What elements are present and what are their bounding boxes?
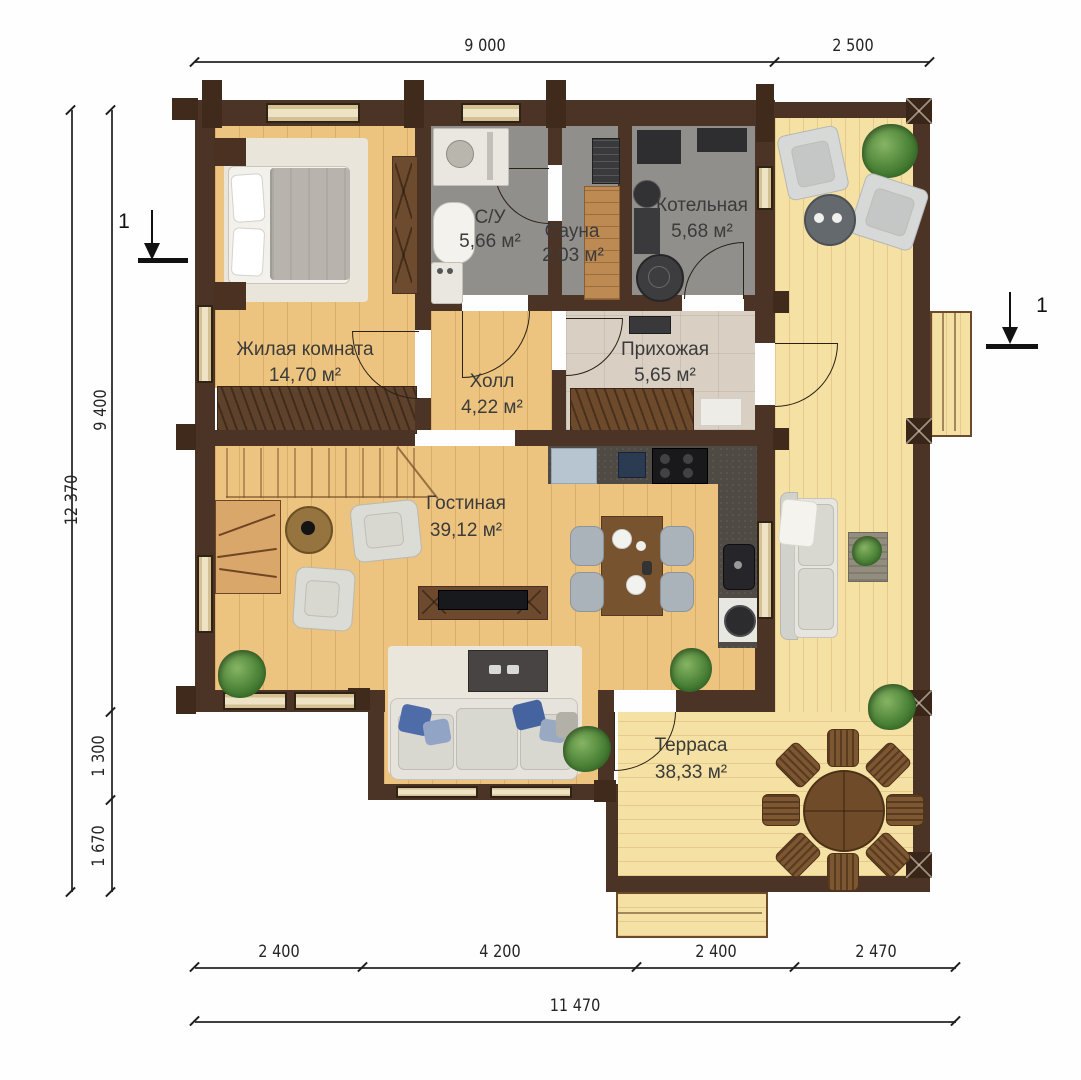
appliance-pad (719, 598, 757, 642)
boiler (636, 254, 684, 302)
wardrobe-panel (395, 163, 412, 219)
step-line (954, 313, 956, 431)
room-area-hall: 4,22 м² (440, 398, 544, 419)
mirror (487, 132, 493, 180)
section-marker-line (1009, 292, 1011, 328)
log-end (172, 98, 198, 120)
kitchen-sink (723, 544, 755, 590)
coffee-table (468, 650, 548, 692)
armchair-cushion (790, 139, 836, 188)
burner (660, 468, 670, 478)
section-marker-bar (986, 344, 1038, 349)
log-end (176, 686, 196, 714)
doormat (700, 398, 742, 426)
log-end (773, 291, 789, 313)
nightstand (214, 138, 246, 166)
dim-top-2500: 2 500 (806, 36, 900, 56)
dining-chair (570, 526, 604, 566)
fridge (551, 448, 597, 484)
wicker-chair (827, 853, 859, 891)
dim-left-12370: 12 370 (62, 453, 82, 547)
dim-top-9000: 9 000 (438, 36, 532, 56)
terrace-post (906, 98, 932, 124)
room-label-boiler: Котельная (638, 196, 766, 217)
dim-bottom-4200: 4 200 (453, 942, 547, 962)
section-marker-bar (138, 258, 188, 263)
log-end (546, 80, 566, 128)
window (294, 692, 356, 710)
log-end (594, 780, 616, 802)
step-line (618, 912, 762, 914)
wall-wet-bottom-c (744, 295, 775, 311)
dining-chair (570, 572, 604, 612)
room-area-terrace: 38,33 м² (626, 763, 756, 784)
log-end (773, 428, 789, 450)
dim-line-bottom-segments (195, 967, 956, 969)
sauna-stove (592, 138, 620, 184)
wicker-chair (886, 794, 924, 826)
room-area-bedroom: 14,70 м² (225, 366, 385, 387)
knob (447, 268, 453, 274)
window (757, 521, 773, 619)
terrace-dining-table (803, 770, 885, 852)
dining-chair (660, 572, 694, 612)
side-table (285, 506, 333, 554)
dining-chair (660, 526, 694, 566)
dim-line-bottom-total (195, 1021, 956, 1023)
plate (612, 529, 632, 549)
dim-left-1670: 1 670 (89, 799, 109, 893)
room-label-sauna: Сауна (526, 222, 618, 243)
bedroom-closet (217, 386, 417, 434)
window (197, 305, 213, 383)
window (490, 786, 572, 798)
bed-pillow (231, 227, 265, 277)
plate (626, 575, 646, 595)
room-label-livingroom: Гостиная (398, 494, 534, 515)
wall-hall-hallway (552, 370, 566, 446)
boiler-ring (648, 266, 670, 288)
nightstand (214, 282, 246, 310)
room-area-livingroom: 39,12 м² (400, 521, 532, 542)
table-grain-line (843, 772, 845, 850)
bottle (642, 561, 652, 575)
log-end (756, 84, 774, 142)
window (396, 786, 478, 798)
throw-blanket (778, 498, 819, 548)
cup (636, 541, 646, 551)
armchair-cushion (304, 580, 340, 618)
armchair-cushion (864, 187, 916, 238)
hob-icon (724, 605, 756, 637)
armchair-cushion (363, 511, 404, 549)
dim-left-9400: 9 400 (91, 363, 111, 457)
room-label-hallway: Прихожая (598, 340, 732, 361)
cup (832, 213, 842, 223)
wall-terrace-bottom (606, 876, 930, 892)
wall-bedroom-right-b (415, 398, 431, 430)
dim-bottom-11470: 11 470 (528, 996, 622, 1016)
step-line (942, 313, 944, 431)
burner (683, 454, 693, 464)
washing-machine (431, 262, 463, 304)
bed-pillow (230, 173, 265, 223)
terrace-post (906, 418, 932, 444)
room-label-bathroom: С/У (448, 208, 532, 229)
log-end (202, 80, 222, 128)
window (266, 103, 360, 123)
section-marker-label: 1 (1030, 294, 1054, 317)
wardrobe-panel (395, 227, 412, 283)
dim-left-1300: 1 300 (89, 709, 109, 803)
tv (438, 590, 528, 610)
armchair (292, 566, 356, 632)
room-area-boiler: 5,68 м² (646, 222, 758, 243)
window (197, 555, 213, 633)
terrace-armchair (776, 124, 850, 201)
dining-table (601, 516, 663, 616)
dim-bottom-2400b: 2 400 (669, 942, 763, 962)
section-marker-line (151, 210, 153, 244)
wicker-chair (827, 729, 859, 767)
hallway-closet (570, 388, 694, 432)
log-end (176, 424, 196, 450)
terrace-bottom-steps (616, 892, 768, 938)
sauna-bench (584, 186, 620, 300)
bowl-icon (301, 521, 315, 535)
window (461, 103, 521, 123)
burner (660, 454, 670, 464)
sink-icon (446, 140, 474, 168)
wall-bath-sauna-a (548, 126, 562, 165)
vent-unit (697, 128, 747, 152)
room-label-terrace: Терраса (628, 736, 754, 757)
dim-bottom-2470: 2 470 (829, 942, 923, 962)
floor-plan: Жилая комната 14,70 м² С/У 5,66 м² Сауна… (0, 0, 1081, 1080)
room-area-sauna: 2,03 м² (524, 246, 622, 267)
sofa-cushion (798, 568, 834, 630)
wall-sauna-boiler (618, 126, 632, 295)
sofa-cushion (456, 708, 518, 770)
pillow (422, 718, 452, 746)
cooktop (652, 448, 708, 484)
room-label-hall: Холл (448, 372, 536, 393)
vent-unit (637, 130, 681, 164)
remote (489, 665, 501, 674)
coffee-machine (618, 452, 646, 478)
terrace-side-steps (930, 311, 972, 437)
electric-panel (629, 316, 671, 334)
dim-bottom-2400a: 2 400 (232, 942, 326, 962)
stairs-upper-ghost (226, 448, 428, 498)
section-arrow-icon (1002, 327, 1018, 344)
room-area-hallway: 5,65 м² (606, 366, 724, 387)
wardrobe (392, 156, 418, 294)
wall-living-top-a (195, 430, 415, 446)
room-label-bedroom: Жилая комната (225, 340, 385, 361)
remote (507, 665, 519, 674)
burner (683, 468, 693, 478)
faucet-icon (734, 561, 742, 569)
section-marker-label: 1 (112, 210, 136, 233)
knob (437, 268, 443, 274)
wicker-chair (762, 794, 800, 826)
bed-blanket (270, 168, 350, 280)
dim-line-top (195, 61, 930, 63)
terrace-coffee-table (804, 194, 856, 246)
log-end (404, 80, 424, 128)
cup (814, 213, 824, 223)
